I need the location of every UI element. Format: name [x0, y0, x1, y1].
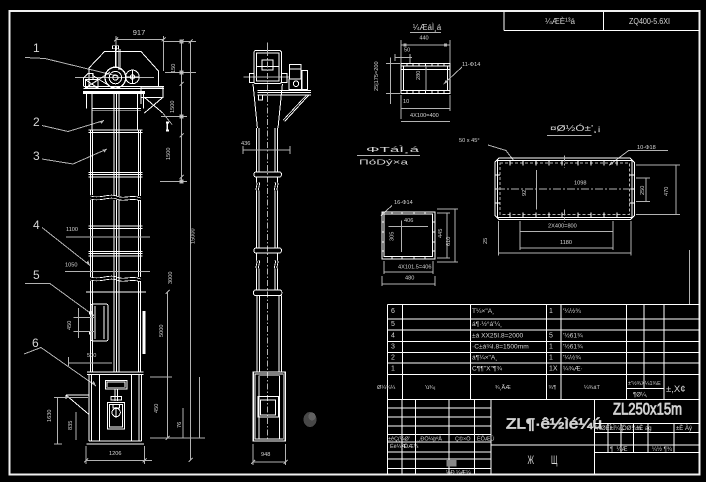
svg-text:á¶·½°á'¼¸: á¶·½°á'¼¸: [472, 320, 502, 328]
svg-text:450: 450: [154, 404, 160, 413]
svg-text:4: 4: [33, 218, 40, 232]
svg-text:1500: 1500: [170, 101, 176, 113]
svg-text:2X400=800: 2X400=800: [548, 224, 577, 230]
svg-text:¼ÆÈ¹³á: ¼ÆÈ¹³á: [545, 16, 575, 26]
svg-text:1180: 1180: [560, 240, 572, 246]
svg-text:±È Àý: ±È Àý: [676, 425, 692, 432]
svg-text:6: 6: [391, 308, 395, 315]
svg-text:15000: 15000: [191, 228, 197, 244]
svg-text:5: 5: [33, 268, 40, 282]
svg-text:3000: 3000: [168, 272, 174, 284]
svg-text:835: 835: [68, 421, 74, 430]
svg-text:1630: 1630: [47, 410, 53, 422]
svg-text:305: 305: [390, 232, 396, 241]
svg-text:150: 150: [171, 64, 177, 73]
svg-text:10: 10: [403, 99, 409, 105]
svg-text:ZL¶·ê½ìé¼ú: ZL¶·ê½ìé¼ú: [506, 416, 602, 433]
svg-text:445: 445: [438, 229, 444, 238]
svg-text:500: 500: [87, 353, 96, 359]
svg-text:16-Φ14: 16-Φ14: [394, 200, 413, 206]
svg-text:ÖÆ¼: ÖÆ¼: [404, 443, 419, 450]
svg-text:'¼½¾: '¼½¾: [563, 354, 581, 362]
svg-text:76: 76: [177, 422, 183, 428]
svg-text:1050: 1050: [65, 263, 77, 269]
svg-text:4X101.5=406: 4X101.5=406: [398, 265, 431, 271]
svg-text:á¶¼×"Α¸: á¶¼×"Α¸: [472, 355, 498, 362]
svg-text:'ú¾¡: 'ú¾¡: [425, 385, 436, 391]
svg-text:1100: 1100: [66, 227, 78, 233]
svg-text:3: 3: [33, 149, 40, 163]
svg-text:Щ: Щ: [551, 455, 558, 467]
svg-text:1: 1: [549, 344, 553, 351]
svg-text:'½61¾: '½61¾: [563, 332, 583, 340]
svg-text:50: 50: [404, 48, 410, 54]
svg-text:¾¸ÃÆ: ¾¸ÃÆ: [495, 384, 511, 391]
svg-text:4X100=400: 4X100=400: [410, 113, 439, 119]
svg-text:2: 2: [391, 355, 395, 362]
svg-text:917: 917: [133, 28, 146, 37]
svg-text:¼ÆáÌ¸á: ¼ÆáÌ¸á: [413, 23, 442, 32]
svg-text:6: 6: [32, 336, 39, 350]
svg-text:·C±á¾Ⅰ.8=1500mm: ·C±á¾Ⅰ.8=1500mm: [472, 344, 529, 351]
svg-text:470: 470: [664, 187, 670, 196]
svg-text:¤Ø½Ó±'¸¡: ¤Ø½Ó±'¸¡: [550, 124, 601, 133]
svg-text:¼Ð ¼Æ¼: ¼Ð ¼Æ¼: [446, 470, 471, 476]
svg-text:¶Ø¼,: ¶Ø¼,: [633, 393, 648, 399]
svg-text:1206: 1206: [109, 451, 121, 457]
svg-text:5: 5: [391, 321, 395, 328]
svg-text:±È ag: ±È ag: [636, 425, 652, 432]
svg-text:'¼½¾: '¼½¾: [563, 307, 581, 315]
svg-text:25: 25: [483, 238, 489, 244]
svg-text:1: 1: [33, 41, 40, 55]
svg-text:5000: 5000: [159, 325, 165, 337]
svg-text:406: 406: [404, 218, 413, 224]
svg-text:50 x 45°: 50 x 45°: [459, 138, 480, 144]
svg-text:11-Φ14: 11-Φ14: [462, 62, 480, 68]
svg-text:Ж: Ж: [528, 455, 535, 467]
svg-text:1X: 1X: [549, 366, 558, 373]
svg-text:Ø¼¾¼: Ø¼¾¼: [377, 385, 396, 391]
svg-text:C¶¶"X"¶¾: C¶¶"X"¶¾: [472, 366, 502, 373]
svg-text:25|175=200: 25|175=200: [374, 61, 380, 91]
svg-text:1098: 1098: [574, 181, 586, 187]
svg-text:436: 436: [241, 141, 250, 147]
svg-text:±êÇ(¼Ø': ±êÇ(¼Ø': [388, 437, 410, 443]
svg-text:1: 1: [391, 366, 395, 373]
svg-text:¼½ ¶¾: ¼½ ¶¾: [652, 446, 673, 453]
svg-text:¼¾Æ·: ¼¾Æ·: [563, 366, 583, 373]
svg-text:948: 948: [261, 452, 270, 458]
svg-text:3: 3: [391, 344, 395, 351]
svg-text:1: 1: [549, 355, 553, 362]
svg-text:92: 92: [522, 190, 528, 196]
svg-text:480: 480: [405, 276, 414, 282]
svg-text:4: 4: [391, 333, 395, 340]
svg-text:ÈÕÆÚ: ÈÕÆÚ: [477, 436, 494, 443]
svg-text:250: 250: [640, 186, 646, 195]
svg-text:±,X¢: ±,X¢: [666, 384, 685, 395]
svg-text:¶ ¼Æ: ¶ ¼Æ: [610, 447, 628, 453]
svg-text:ΠóDý×a: ΠóDý×a: [359, 158, 409, 167]
svg-text:Ç©×Ö: Ç©×Ö: [455, 436, 471, 443]
svg-text:ZQ400-5.6XI: ZQ400-5.6XI: [629, 16, 670, 26]
svg-text:5: 5: [549, 333, 553, 340]
svg-text:¼¾áT: ¼¾áT: [584, 385, 600, 391]
svg-text:Τ¼×"Α¸: Τ¼×"Α¸: [472, 308, 494, 315]
svg-text:ZL250x15m: ZL250x15m: [613, 401, 682, 419]
svg-text:2: 2: [33, 115, 40, 129]
svg-text:ΦΤáÌ¸á: ΦΤáÌ¸á: [366, 145, 421, 154]
svg-text:¾¶: ¾¶: [549, 385, 557, 391]
svg-text:450: 450: [67, 321, 73, 330]
svg-text:¸,ÐÖ¼þºÅ: ¸,ÐÖ¼þºÅ: [417, 436, 442, 443]
svg-text:'½61¾: '½61¾: [563, 343, 583, 351]
svg-text:±'½¾X¼1¾E: ±'½¾X¼1¾E: [628, 380, 661, 387]
svg-text:±á XX25Ⅰ.8=2000: ±á XX25Ⅰ.8=2000: [472, 333, 524, 340]
svg-text:280: 280: [416, 71, 422, 80]
svg-text:440: 440: [419, 36, 428, 42]
svg-text:1: 1: [549, 308, 553, 315]
svg-text:1500: 1500: [166, 148, 172, 160]
